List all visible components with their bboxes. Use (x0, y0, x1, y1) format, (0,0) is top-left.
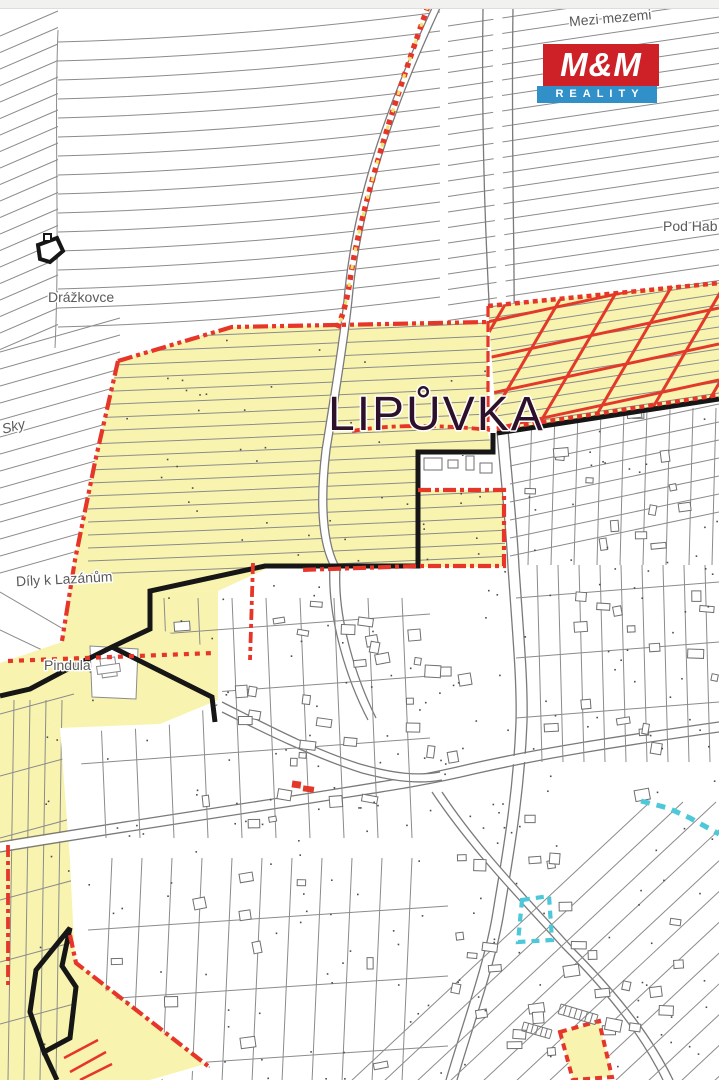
label-lipuvka: LIPŮVKA (328, 386, 545, 441)
logo-tagline: REALITY (537, 86, 657, 103)
label-mezi-mezemi: Mezi mezemi (568, 6, 652, 29)
logo-brand: M&M (543, 44, 659, 86)
map-screenshot: Mezi mezemi Pod Hab Drážkovce Sky Díly k… (0, 0, 719, 1080)
label-pod-hab: Pod Hab (663, 218, 718, 234)
label-drazkovce: Drážkovce (48, 289, 114, 305)
roads-north-layer (483, 8, 515, 324)
cadastral-map[interactable]: Mezi mezemi Pod Hab Drážkovce Sky Díly k… (0, 0, 719, 1080)
mm-reality-logo[interactable]: M&M REALITY (543, 44, 659, 103)
page-top-bar (0, 0, 719, 9)
label-pindula: Pindula (44, 657, 91, 673)
